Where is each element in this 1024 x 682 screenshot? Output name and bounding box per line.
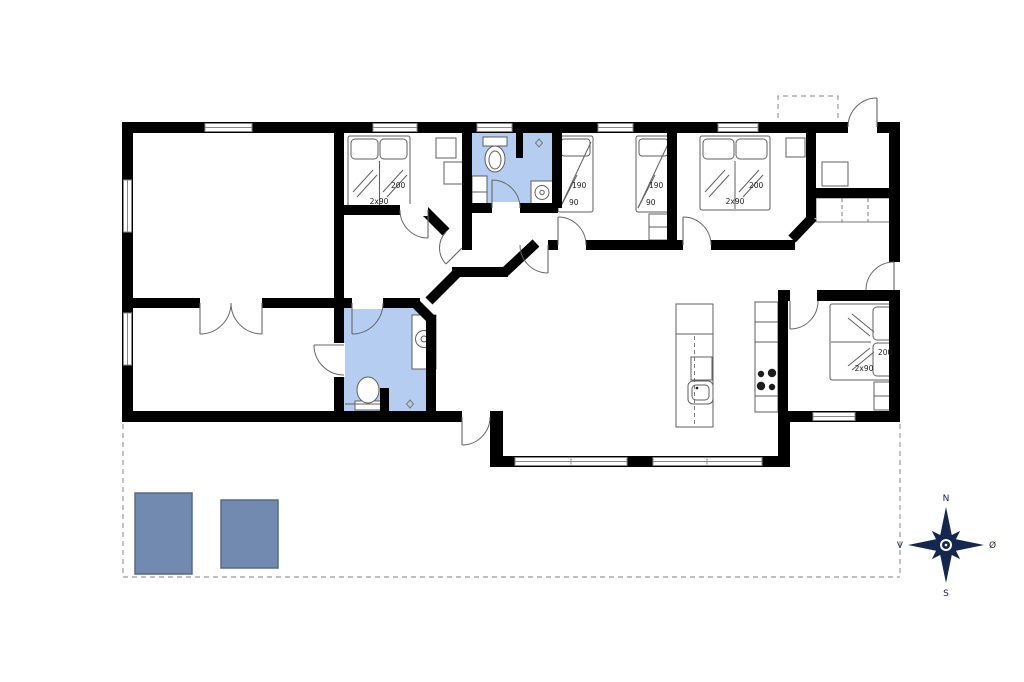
bed-length-label: 200 bbox=[878, 348, 893, 357]
pillow bbox=[380, 139, 407, 159]
bed-width-label: 90 bbox=[646, 198, 656, 207]
bed-length-label: 200 bbox=[749, 181, 764, 190]
pillow bbox=[736, 139, 767, 159]
floor-plan: 200 2x90 190 90 190 90 200 2x90 200 2x90… bbox=[0, 0, 1024, 682]
bed-width-label: 2x90 bbox=[855, 364, 874, 373]
bed-width-label: 2x90 bbox=[726, 197, 745, 206]
north-bedroom-nightstand bbox=[786, 138, 805, 157]
bed-length-label: 190 bbox=[649, 181, 664, 190]
north-bathroom-washing-machine-icon bbox=[531, 181, 553, 204]
bed-length-label: 190 bbox=[572, 181, 587, 190]
terrace-furniture bbox=[221, 500, 278, 568]
north-bathroom-toilet-icon bbox=[483, 137, 507, 172]
kitchen-island bbox=[676, 304, 713, 427]
childrens-room-nightstand bbox=[649, 214, 668, 240]
bed-length-label: 200 bbox=[391, 181, 406, 190]
bed-width-label: 2x90 bbox=[370, 197, 389, 206]
west-bedroom-nightstand bbox=[436, 138, 456, 158]
pillow bbox=[703, 139, 734, 159]
compass-north-label: N bbox=[943, 494, 950, 504]
compass-south-label: S bbox=[943, 589, 949, 599]
compass-west-label: V bbox=[897, 541, 904, 551]
kitchen-counter bbox=[755, 302, 778, 412]
terrace-furniture bbox=[135, 493, 192, 574]
pillow bbox=[351, 139, 378, 159]
compass-east-label: Ø bbox=[989, 540, 996, 551]
bed-width-label: 90 bbox=[569, 198, 579, 207]
entrance-cabinet bbox=[822, 162, 848, 186]
